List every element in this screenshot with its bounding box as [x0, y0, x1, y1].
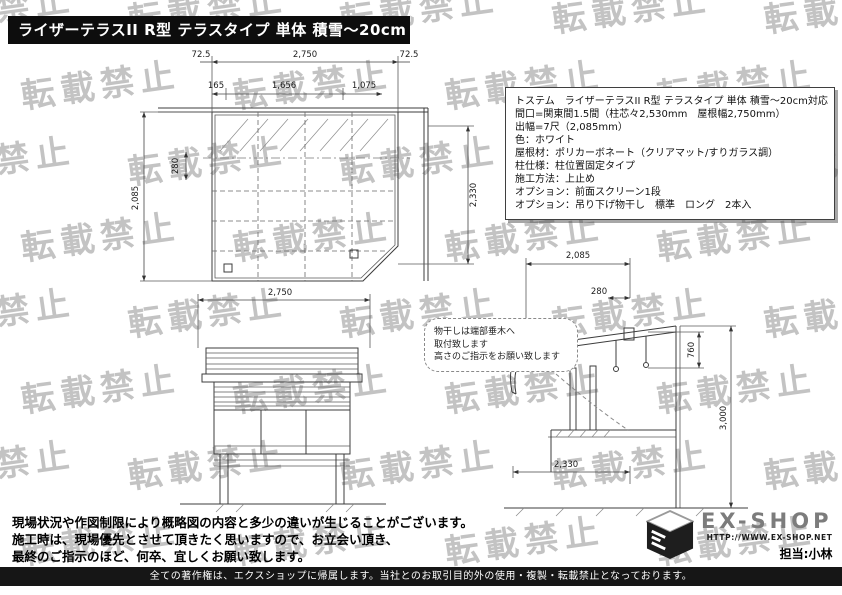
- spec-line: 柱仕様：柱位置固定タイプ: [515, 160, 825, 173]
- exshop-cube-icon: [646, 509, 694, 561]
- dim-side-depth-top: 2,085: [566, 251, 590, 261]
- plan-view-drawing: 72.5 2,750 72.5 165 1,656 1,075 2,085 28…: [128, 46, 523, 308]
- side-wall: [676, 326, 680, 508]
- plan-dimensions: 72.5 2,750 72.5 165 1,656 1,075 2,085 28…: [131, 50, 479, 281]
- spec-line: 施工方法：上止め: [515, 173, 825, 186]
- site-note-line: 現場状況や作図制限により概略図の内容と多少の違いが生じることがございます。: [12, 514, 473, 531]
- front-roof: [202, 348, 362, 382]
- plan-roof-hatch: [220, 119, 388, 151]
- logo-name: EX-SHOP: [701, 509, 832, 533]
- dim-seg-b: 1,656: [272, 81, 296, 91]
- dim-seg-c: 1,075: [352, 81, 376, 91]
- watermark-text: 転載禁止: [0, 275, 78, 346]
- site-note: 現場状況や作図制限により概略図の内容と多少の違いが生じることがございます。 施工…: [12, 514, 473, 565]
- dim-pole-drop: 760: [687, 342, 697, 358]
- plan-wall-lines: [158, 108, 428, 281]
- note-line: 高さのご指示をお願い致します: [434, 351, 568, 364]
- front-view-drawing: 2,750: [176, 286, 391, 516]
- watermark-text: 転載禁止: [0, 123, 78, 194]
- dim-overhang-right: 72.5: [400, 50, 419, 60]
- note-leader-line: [548, 368, 638, 440]
- spec-line: 色：ホワイト: [515, 134, 825, 147]
- watermark-text: 転載禁止: [0, 427, 78, 498]
- spec-box: トステム ライザーテラスII R型 テラスタイプ 単体 積雪～20cm対応 間口…: [505, 87, 835, 220]
- spec-line: 屋根材：ポリカーボネート（クリアマット/すりガラス調）: [515, 147, 825, 160]
- logo-staff: 担当:小林: [780, 545, 833, 563]
- dim-eave-offset: 280: [591, 287, 607, 297]
- front-posts: [214, 454, 350, 504]
- exshop-logo: EX-SHOP HTTP://WWW.EX-SHOP.NET 担当:小林: [646, 509, 838, 565]
- dim-side-depth: 2,330: [469, 183, 479, 207]
- spec-line: オプション：吊り下げ物干し 標準 ロング 2本入: [515, 199, 825, 212]
- site-note-line: 施工時は、現場優先とさせて頂きたく思いますので、お立会い頂き、: [12, 531, 473, 548]
- plan-centerlines: [203, 112, 410, 281]
- dim-overhang-left: 72.5: [192, 50, 211, 60]
- front-dimensions: 2,750: [198, 288, 370, 348]
- front-frame: [214, 410, 350, 454]
- dim-seg-a: 165: [208, 81, 224, 91]
- copyright-bar: 全ての著作権は、エクスショップに帰属します。当社とのお取引目的外の使用・複製・転…: [0, 567, 842, 586]
- dim-wall-offset: 280: [171, 158, 181, 174]
- watermark-text: 転載禁止: [548, 0, 713, 42]
- dim-front-width: 2,750: [268, 288, 292, 298]
- site-note-line: 最終のご指示のほど、何卒、宜しくお願い致します。: [12, 548, 473, 565]
- side-dimensions-bottom: 2,330: [513, 460, 630, 484]
- spec-line: オプション：前面スクリーン1段: [515, 186, 825, 199]
- note-line: 取付致します: [434, 339, 568, 352]
- front-ground: [180, 504, 386, 512]
- dim-floor-depth: 2,330: [554, 460, 578, 470]
- plan-posts: [224, 250, 358, 272]
- spec-line: 出幅=7尺（2,085mm）: [515, 121, 825, 134]
- watermark-text: 転載禁止: [17, 351, 182, 422]
- front-screen: [214, 382, 350, 410]
- drawing-sheet: { "watermark": { "text": "転載禁止" }, "titl…: [0, 0, 842, 595]
- title-banner: ライザーテラスII R型 テラスタイプ 単体 積雪～20cm対応: [8, 16, 410, 44]
- dim-depth: 2,085: [131, 186, 141, 210]
- side-view-drawing: 2,085 280 760 3,000: [496, 240, 806, 520]
- side-dimensions-right: 760 3,000: [648, 326, 736, 508]
- logo-url: HTTP://WWW.EX-SHOP.NET: [707, 533, 833, 543]
- note-line: 物干しは端部垂木へ: [434, 326, 568, 339]
- laundry-pole: [614, 336, 649, 372]
- dim-width: 2,750: [293, 50, 317, 60]
- dim-total-height: 3,000: [719, 406, 729, 430]
- watermark-text: 転載禁止: [760, 0, 842, 42]
- spec-line: トステム ライザーテラスII R型 テラスタイプ 単体 積雪～20cm対応: [515, 95, 825, 108]
- note-bubble: 物干しは端部垂木へ 取付致します 高さのご指示をお願い致します: [424, 318, 578, 372]
- spec-line: 間口=関東間1.5間（柱芯々2,530mm 屋根幅2,750mm）: [515, 108, 825, 121]
